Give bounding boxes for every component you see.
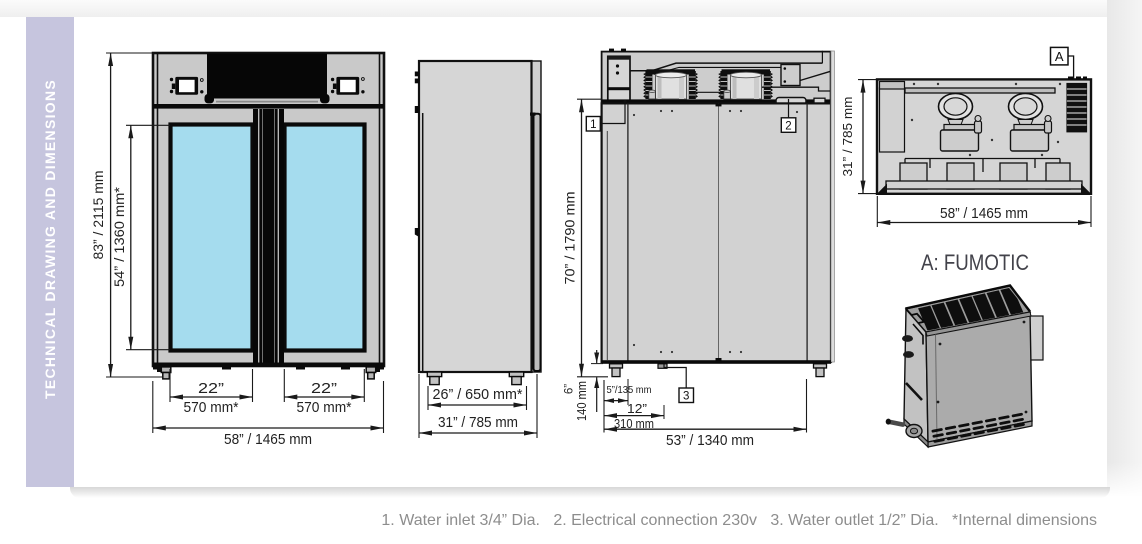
svg-text:22”: 22”: [311, 380, 337, 397]
svg-text:3: 3: [683, 391, 689, 403]
svg-text:12”: 12”: [627, 401, 647, 416]
svg-text:6”: 6”: [564, 384, 576, 394]
svg-text:A: FUMOTIC: A: FUMOTIC: [921, 250, 1029, 275]
svg-text:58” / 1465 mm: 58” / 1465 mm: [224, 431, 312, 448]
svg-text:22”: 22”: [198, 380, 224, 397]
svg-text:570 mm*: 570 mm*: [297, 399, 352, 416]
svg-text:570 mm*: 570 mm*: [184, 399, 239, 416]
svg-text:83” / 2115 mm: 83” / 2115 mm: [91, 171, 106, 260]
svg-text:31” / 785 mm: 31” / 785 mm: [438, 414, 518, 431]
svg-text:26” / 650 mm*: 26” / 650 mm*: [433, 386, 523, 403]
svg-text:31” / 785 mm: 31” / 785 mm: [841, 97, 855, 177]
svg-text:A: A: [1055, 49, 1064, 64]
svg-text:5”/135 mm: 5”/135 mm: [607, 384, 652, 396]
svg-text:2: 2: [785, 120, 791, 132]
svg-text:54” / 1360 mm*: 54” / 1360 mm*: [112, 186, 127, 287]
svg-text:58” / 1465 mm: 58” / 1465 mm: [940, 205, 1028, 222]
svg-text:1: 1: [590, 119, 596, 131]
svg-text:53” / 1340 mm: 53” / 1340 mm: [666, 432, 754, 449]
svg-text:70” / 1790 mm: 70” / 1790 mm: [563, 192, 578, 285]
svg-text:140 mm: 140 mm: [575, 381, 589, 421]
